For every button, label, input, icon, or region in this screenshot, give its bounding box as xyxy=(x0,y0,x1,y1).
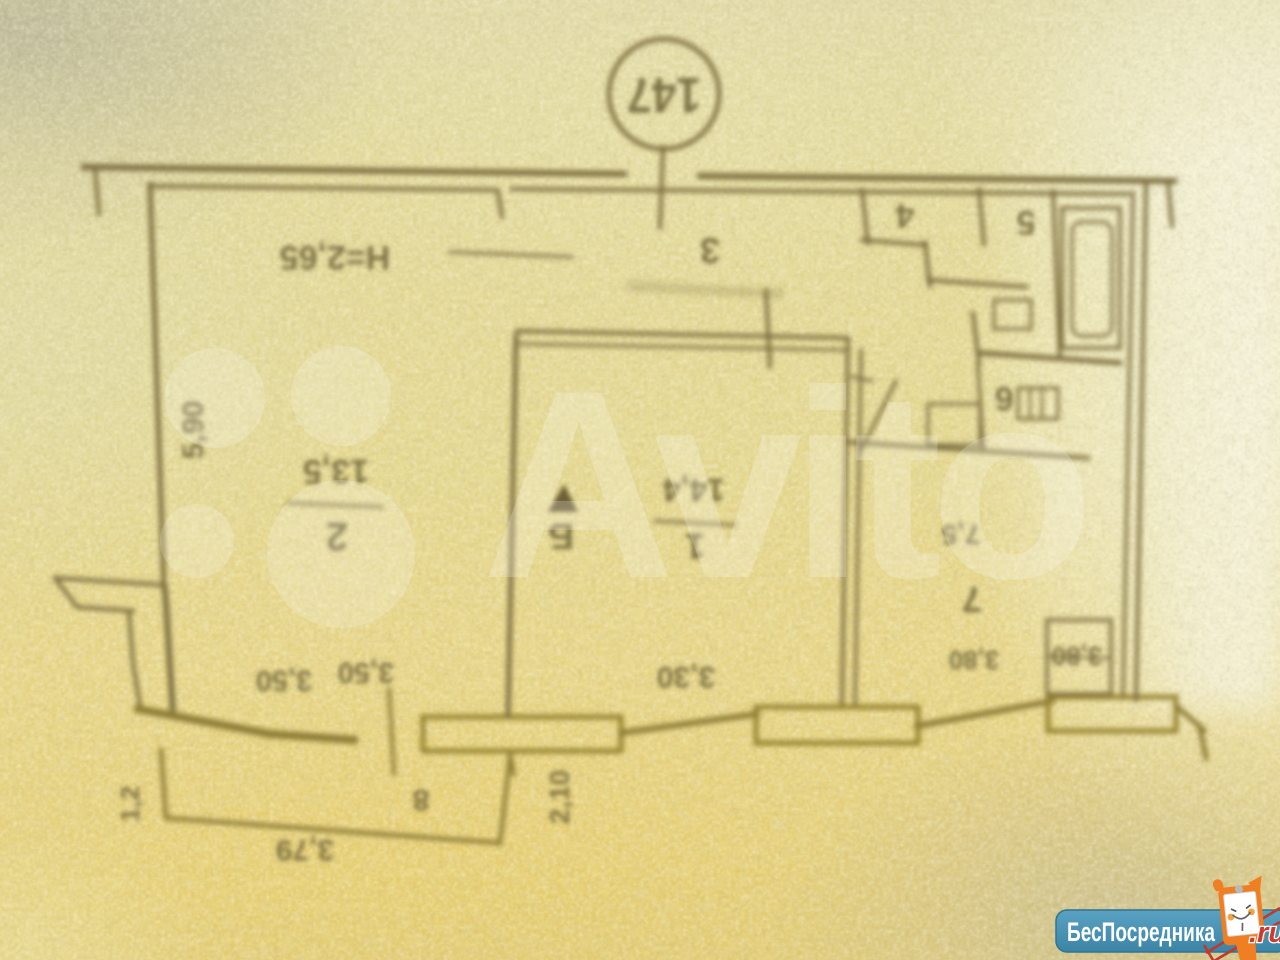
svg-text:.ru: .ru xyxy=(1249,917,1280,949)
svg-text:БесПосредника: БесПосредника xyxy=(1067,917,1216,947)
